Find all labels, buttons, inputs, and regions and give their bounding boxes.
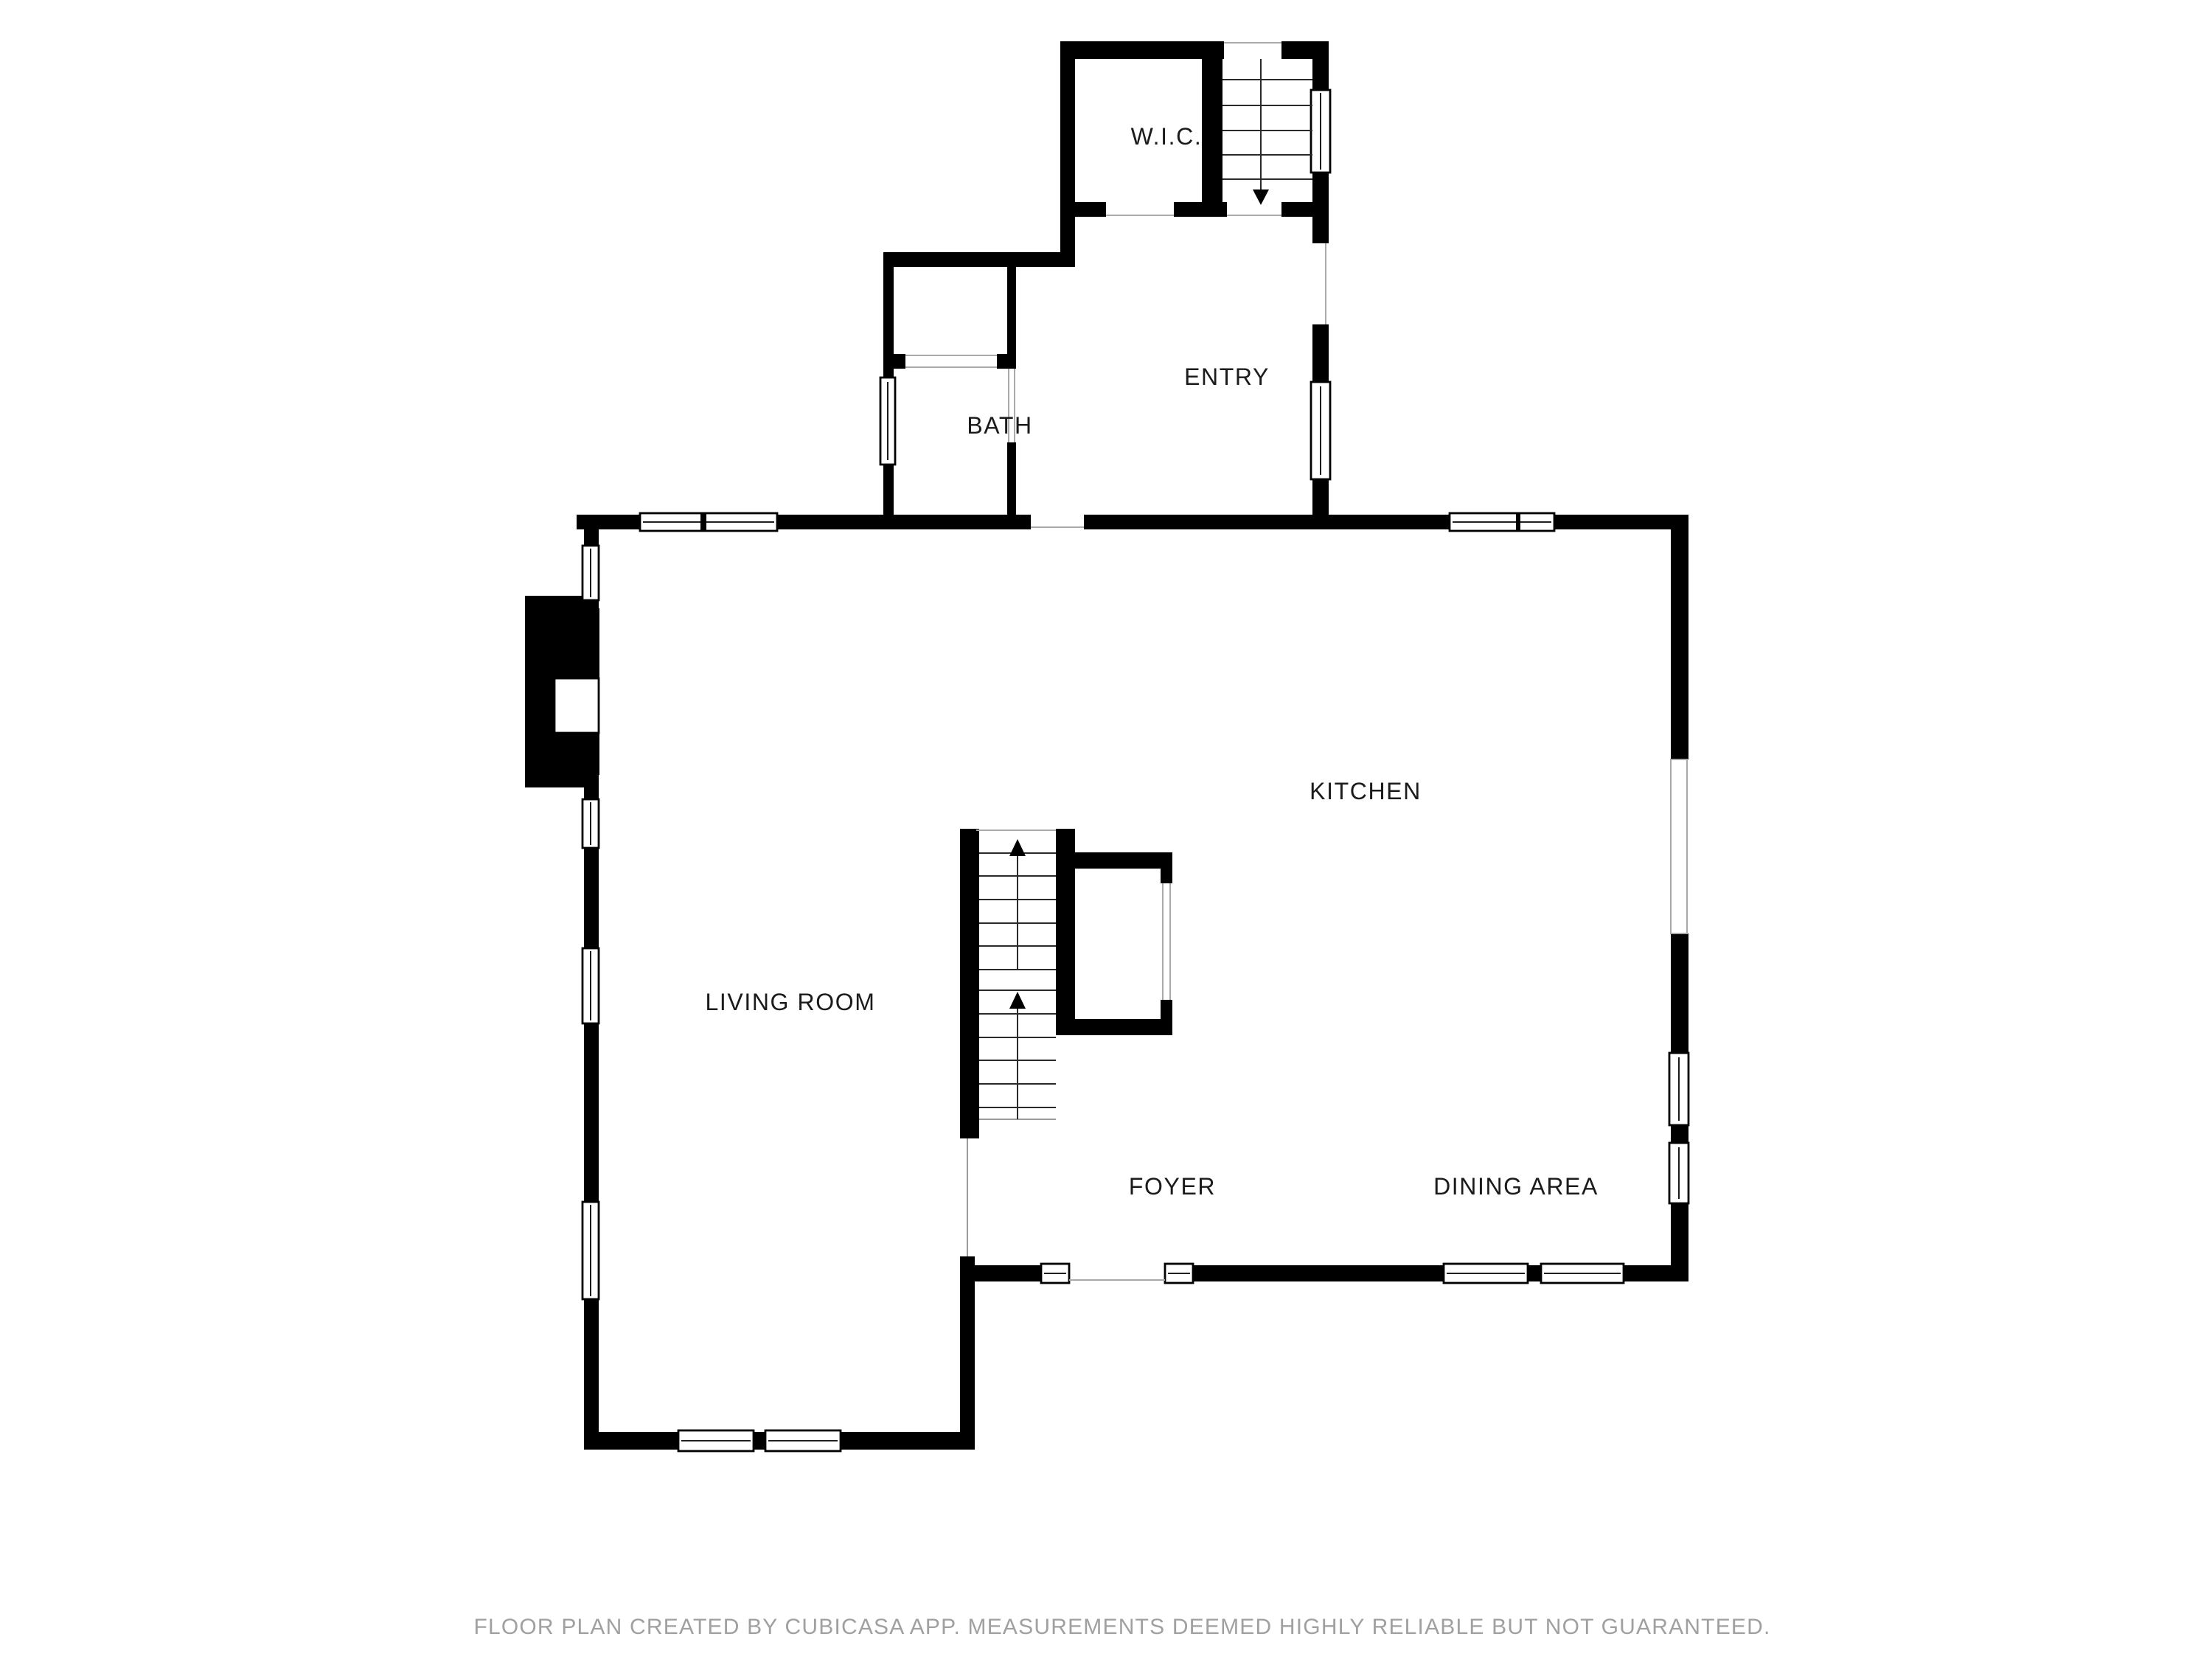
window — [1669, 1143, 1688, 1203]
window — [582, 948, 599, 1023]
stairs-up-arrow — [1009, 992, 1026, 1009]
room-label-foyer: FOYER — [1129, 1173, 1216, 1200]
room-label-entry: ENTRY — [1184, 364, 1270, 390]
window — [582, 1202, 599, 1299]
floor-plan-svg: W.I.C. ENTRY BATH KITCHEN LIVING ROOM FO… — [0, 0, 2212, 1659]
fireplace — [525, 596, 599, 787]
window — [582, 546, 599, 600]
floor-plan-page: W.I.C. ENTRY BATH KITCHEN LIVING ROOM FO… — [0, 0, 2212, 1659]
room-label-living-room: LIVING ROOM — [706, 989, 876, 1015]
room-label-dining-area: DINING AREA — [1433, 1173, 1599, 1200]
windows — [582, 90, 1688, 1451]
room-labels: W.I.C. ENTRY BATH KITCHEN LIVING ROOM FO… — [706, 123, 1599, 1200]
walls — [577, 41, 1688, 1450]
window — [1041, 1264, 1069, 1283]
door-openings — [905, 43, 1687, 1280]
window — [765, 1430, 841, 1451]
window — [1311, 90, 1330, 173]
window — [678, 1430, 754, 1451]
window — [1669, 1053, 1688, 1125]
stairs-up-arrow — [1009, 839, 1026, 856]
window — [1444, 1264, 1528, 1283]
window — [880, 378, 895, 465]
window — [1541, 1264, 1624, 1283]
window — [582, 799, 599, 848]
window — [1311, 382, 1330, 479]
stairwell-upper — [1222, 59, 1312, 205]
room-label-wic: W.I.C. — [1131, 123, 1203, 150]
sliding-door — [1671, 759, 1687, 933]
window — [640, 513, 777, 531]
staircase-main — [967, 839, 1056, 1256]
room-label-kitchen: KITCHEN — [1310, 778, 1422, 804]
room-label-bath: BATH — [967, 412, 1032, 439]
window — [1165, 1264, 1193, 1283]
window — [1450, 513, 1554, 531]
footer-disclaimer: FLOOR PLAN CREATED BY CUBICASA APP. MEAS… — [473, 1615, 1770, 1639]
stairs-down-arrow — [1253, 189, 1269, 205]
